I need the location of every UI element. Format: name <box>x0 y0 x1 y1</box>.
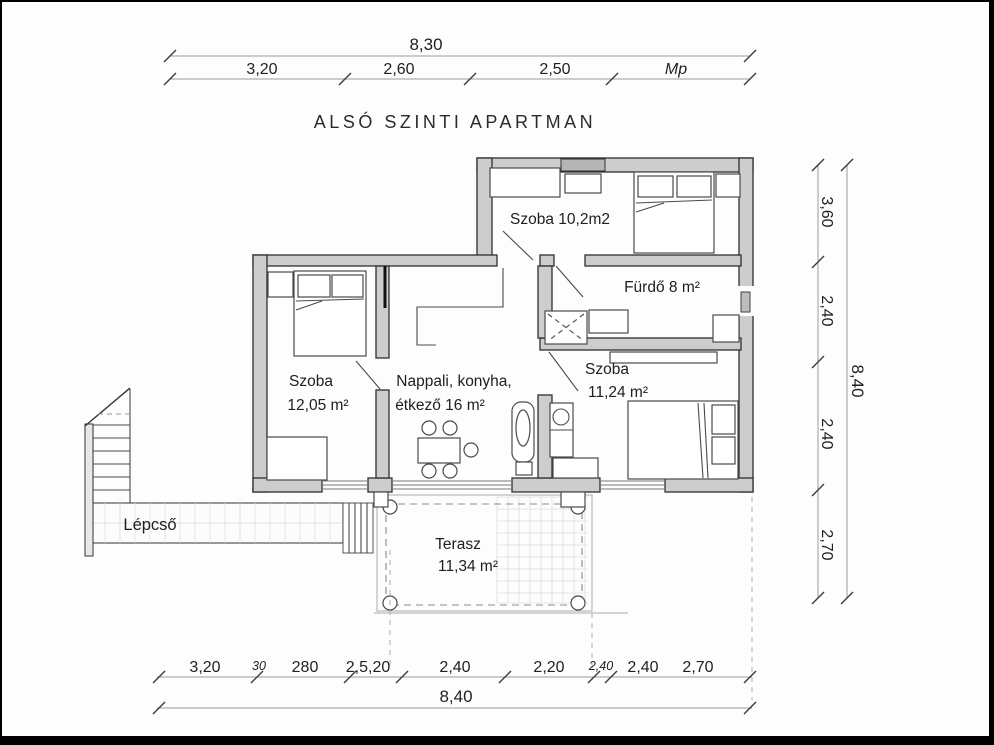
floorplan-drawing: 8,30 3,20 2,60 2,50 Mp ALSÓ SZINTI APART… <box>0 0 994 745</box>
room-area-szoba-left: 12,05 m² <box>287 397 348 414</box>
dim-right-seg-4: 2,70 <box>818 529 835 560</box>
plan-title: ALSÓ SZINTI APARTMAN <box>314 111 596 132</box>
dimension-top: 8,30 3,20 2,60 2,50 Mp <box>164 35 756 85</box>
dim-right-seg-2: 2,40 <box>818 295 835 326</box>
dim-bottom-seg-2: 30 <box>252 659 266 673</box>
dimension-right: 3,60 2,40 2,40 2,70 8,40 <box>812 159 867 604</box>
room-label-lepcso: Lépcső <box>123 516 176 534</box>
dim-right-seg-3: 2,40 <box>818 418 835 449</box>
furniture-szoba-right <box>550 352 738 479</box>
dim-top-total: 8,30 <box>409 35 442 54</box>
room-label-furdo: Fürdő 8 m² <box>624 279 700 296</box>
dim-top-seg-4: Mp <box>665 61 687 78</box>
dim-top-seg-1: 3,20 <box>246 61 277 78</box>
dim-bottom-seg-9: 2,70 <box>682 659 713 676</box>
dimension-bottom: 3,20 30 280 2,5,20 2,40 2,20 2,40 2,40 2… <box>153 659 756 714</box>
dim-bottom-seg-7: 2,40 <box>588 659 613 673</box>
dim-bottom-seg-1: 3,20 <box>189 659 220 676</box>
room-label-terasz: Terasz <box>435 536 481 553</box>
washbasin <box>550 403 573 457</box>
room-area-terasz: 11,34 m² <box>438 558 498 575</box>
corridor-steps <box>343 503 373 553</box>
room-label-nappali: Nappali, konyha, <box>396 373 511 390</box>
dim-bottom-seg-8: 2,40 <box>627 659 658 676</box>
toilet <box>512 402 534 475</box>
room-label-szoba-left: Szoba <box>289 373 333 390</box>
dim-bottom-seg-3: 280 <box>292 659 319 676</box>
dim-bottom-seg-6: 2,20 <box>533 659 564 676</box>
dim-bottom-total: 8,40 <box>439 687 472 706</box>
room-area-nappali: étkező 16 m² <box>395 397 485 414</box>
dim-right-total: 8,40 <box>848 364 867 397</box>
terasz <box>374 492 628 613</box>
room-label-szoba-upper: Szoba 10,2m2 <box>510 211 610 228</box>
dim-bottom-seg-5: 2,40 <box>439 659 470 676</box>
floorplan-page: 8,30 3,20 2,60 2,50 Mp ALSÓ SZINTI APART… <box>0 0 994 745</box>
dim-top-seg-2: 2,60 <box>383 61 414 78</box>
room-area-szoba-right: 11,24 m² <box>588 384 648 401</box>
dim-top-seg-3: 2,50 <box>539 61 570 78</box>
dim-bottom-seg-4: 2,5,20 <box>346 659 391 676</box>
dim-right-seg-1: 3,60 <box>818 196 835 227</box>
room-label-szoba-right: Szoba <box>585 361 629 378</box>
